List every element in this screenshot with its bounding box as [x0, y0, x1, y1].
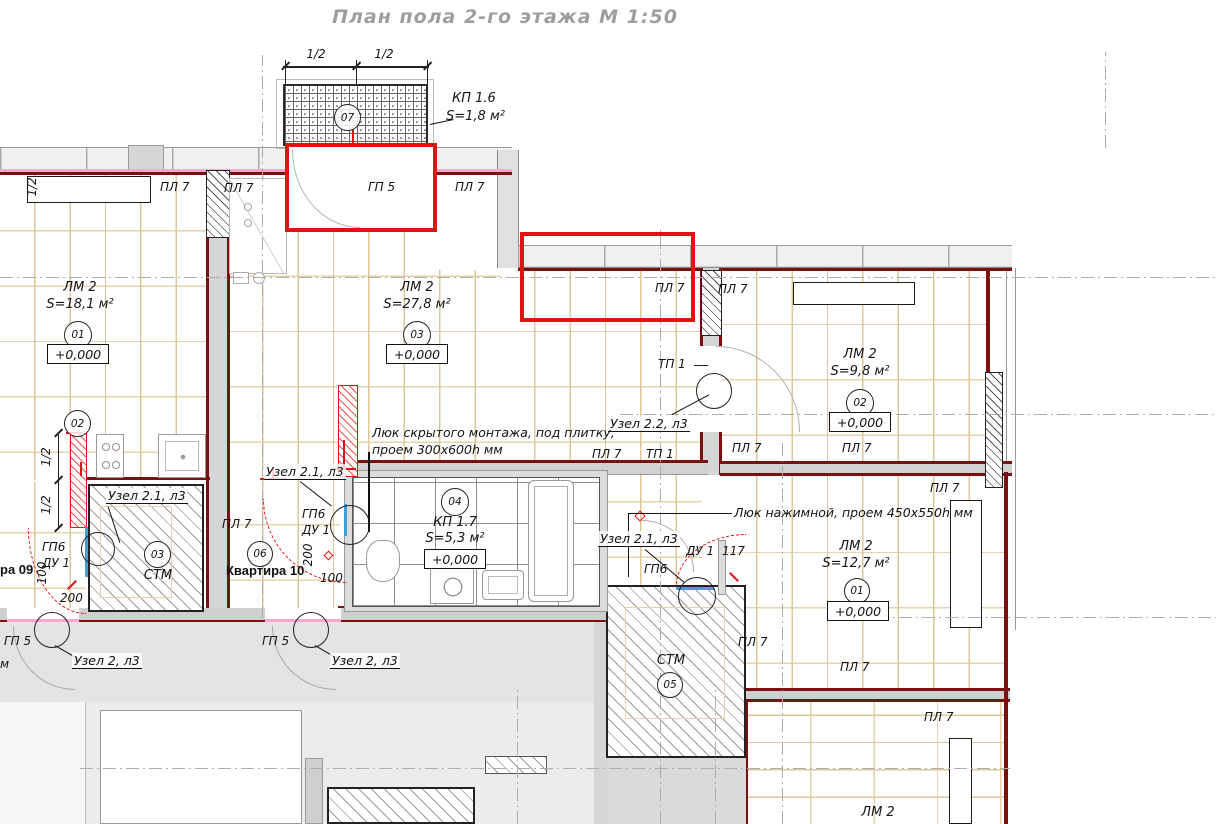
mark-pl7-9: ПЛ 7 [930, 482, 960, 496]
floor-plan-canvas: 1/2 1/2 1/2 1/2 1/2 100 200 200 100 117 … [0, 0, 1216, 824]
shaft-hatched-bottom [327, 787, 475, 824]
highlight-box-2 [520, 232, 695, 322]
mark-pl7-8: ПЛ 7 [842, 442, 872, 456]
node-circle-2-1 [34, 612, 70, 648]
kitchen-hob-small [233, 272, 249, 284]
mark-gp6-mid: ГП6 [302, 508, 325, 522]
dim-100-apt10: 100 [320, 572, 343, 586]
bedroom-elev: +0,000 [827, 601, 889, 621]
radiator-room02 [793, 282, 915, 305]
living-left-name: ЛМ 2 [30, 281, 130, 296]
leader-tp1-top [694, 365, 708, 366]
living-mid-area: S=27,8 м² [367, 298, 467, 313]
leader-push-hatch-h [628, 513, 732, 514]
balcony-name: КП 1.6 [452, 92, 496, 107]
mark-pl7-3: ПЛ 7 [455, 181, 485, 195]
dim-half-topleft: 1/2 [26, 174, 40, 200]
living-right-area: S=9,8 м² [810, 365, 910, 380]
living-right-name: ЛМ 2 [810, 348, 910, 363]
centerline-h2 [620, 414, 1216, 415]
dim-half-left-1: 1/2 [40, 444, 54, 470]
node-circle-22 [696, 373, 732, 409]
dim-200-left: 200 [60, 592, 83, 606]
mark-pl7-1: ПЛ 7 [160, 181, 190, 195]
dim-half-top-1: 1/2 [296, 48, 336, 62]
mark-gp5-top: ГП 5 [368, 181, 395, 195]
living-left-area: S=18,1 м² [30, 298, 130, 313]
centerline-v5 [517, 690, 518, 824]
centerline-v3 [782, 440, 783, 824]
bedroom-area: S=12,7 м² [806, 557, 906, 572]
radiator-left [27, 176, 151, 203]
living-right-elev: +0,000 [829, 412, 891, 432]
apt10-label: Квартира 10 [226, 563, 304, 578]
node-label-21-mid: Узел 2.1, л3 [264, 464, 346, 480]
mark-gp6-left: ГП6 [42, 541, 65, 555]
radiator-bottom [949, 738, 972, 824]
mark-pl7-5: ПЛ 7 [718, 283, 748, 297]
node-circle-2-2 [293, 612, 329, 648]
node-label-2-1: Узел 2, л3 [72, 653, 142, 669]
mark-pl7-13: ПЛ 7 [222, 518, 252, 532]
note-hidden-hatch-2: проем 300х600h мм [372, 443, 503, 457]
room-code-balcony: 07 [334, 104, 361, 131]
wall-pier-hatched-central [701, 270, 722, 336]
mark-du1-right: ДУ 1 [686, 545, 714, 559]
mark-pl7-6: ПЛ 7 [592, 448, 622, 462]
washing-machine [430, 568, 474, 604]
stm-mid-code: 05 [657, 672, 683, 698]
sink-left [158, 434, 206, 478]
node-label-2-2: Узел 2, л3 [330, 653, 400, 669]
dim-half-left-2: 1/2 [40, 492, 54, 518]
stm-mid-name: СТМ [647, 654, 695, 669]
mark-gp6-right: ГП6 [644, 563, 667, 577]
room-bottom-left [100, 710, 302, 824]
bath-area: S=5,3 м² [405, 532, 505, 547]
living-left-elev: +0,000 [47, 344, 109, 364]
stm-left-code: 03 [144, 541, 171, 568]
centerline-v6 [715, 690, 716, 824]
stair-left [0, 702, 86, 824]
page-title: План пола 2-го этажа М 1:50 [0, 6, 1010, 28]
bathtub [528, 480, 574, 602]
wall-corner-vertical [497, 150, 519, 268]
node-circle-21-right [678, 577, 716, 615]
mark-pl7-2: ПЛ 7 [224, 182, 254, 196]
mark-du1-left: ДУ 1 [42, 557, 70, 571]
living-mid-elev: +0,000 [386, 344, 448, 364]
stove-left [96, 434, 124, 478]
stm-left-name: СТМ [134, 569, 182, 584]
dim-117-du1: 117 [722, 545, 745, 559]
balcony-area: S=1,8 м² [446, 110, 505, 125]
wall-right-lower [1004, 472, 1008, 824]
living-mid-name: ЛМ 2 [367, 281, 467, 296]
node-label-22: Узел 2.2, л3 [608, 416, 690, 432]
node-circle-21-mid [330, 505, 370, 545]
wall-room02-bottom [720, 461, 1012, 476]
mark-gp5-corr-2: ГП 5 [262, 635, 289, 649]
bath-sink [482, 570, 524, 600]
red-hatch-strip-left [70, 433, 87, 528]
pier-hatched-bottom [485, 756, 547, 774]
red-tick-2 [352, 130, 354, 146]
mark-pl7-11: ПЛ 7 [840, 661, 870, 675]
node-label-21-right: Узел 2.1, л3 [598, 531, 680, 547]
mark-pl7-10: ПЛ 7 [738, 636, 768, 650]
wall-right-upper [986, 268, 990, 374]
wall-bottom-mid [606, 756, 746, 824]
mark-pl7-4: ПЛ 7 [655, 282, 685, 296]
bath-name: КП 1.7 [405, 516, 505, 531]
node-circle-21-left [81, 532, 115, 566]
toilet [366, 540, 400, 582]
highlight-box-1 [285, 143, 437, 232]
centerline-h4 [80, 768, 1010, 769]
mark-tp1-top: ТП 1 [658, 358, 686, 372]
centerline-v4 [1105, 52, 1106, 148]
bedroom-name: ЛМ 2 [806, 540, 906, 555]
kitchen-sink-small [253, 272, 265, 284]
note-push-hatch: Люк нажимной, проем 450х550h мм [734, 506, 973, 520]
node-label-21-left: Узел 2.1, л3 [106, 488, 188, 504]
mark-gp5-corr-1: ГП 5 [4, 635, 31, 649]
partial-m-label: м [0, 658, 9, 672]
mark-du1-mid: ДУ 1 [302, 524, 330, 538]
red-tick-7 [80, 462, 82, 476]
wall-pier-hatched-right [985, 372, 1003, 488]
bath-elev: +0,000 [424, 549, 486, 569]
left-col-code: 02 [64, 410, 91, 437]
dim-half-top-2: 1/2 [364, 48, 404, 62]
apt09-label-partial: ра 09 [0, 562, 33, 577]
mark-pl7-12: ПЛ 7 [924, 711, 954, 725]
mark-pl7-7: ПЛ 7 [732, 442, 762, 456]
bath-code: 04 [441, 488, 469, 516]
bottom-right-name: ЛМ 2 [828, 806, 928, 821]
mark-tp1-bottom: ТП 1 [646, 448, 674, 462]
note-hidden-hatch-1: Люк скрытого монтажа, под плитку, [372, 426, 615, 440]
centerline-v1 [262, 55, 263, 618]
